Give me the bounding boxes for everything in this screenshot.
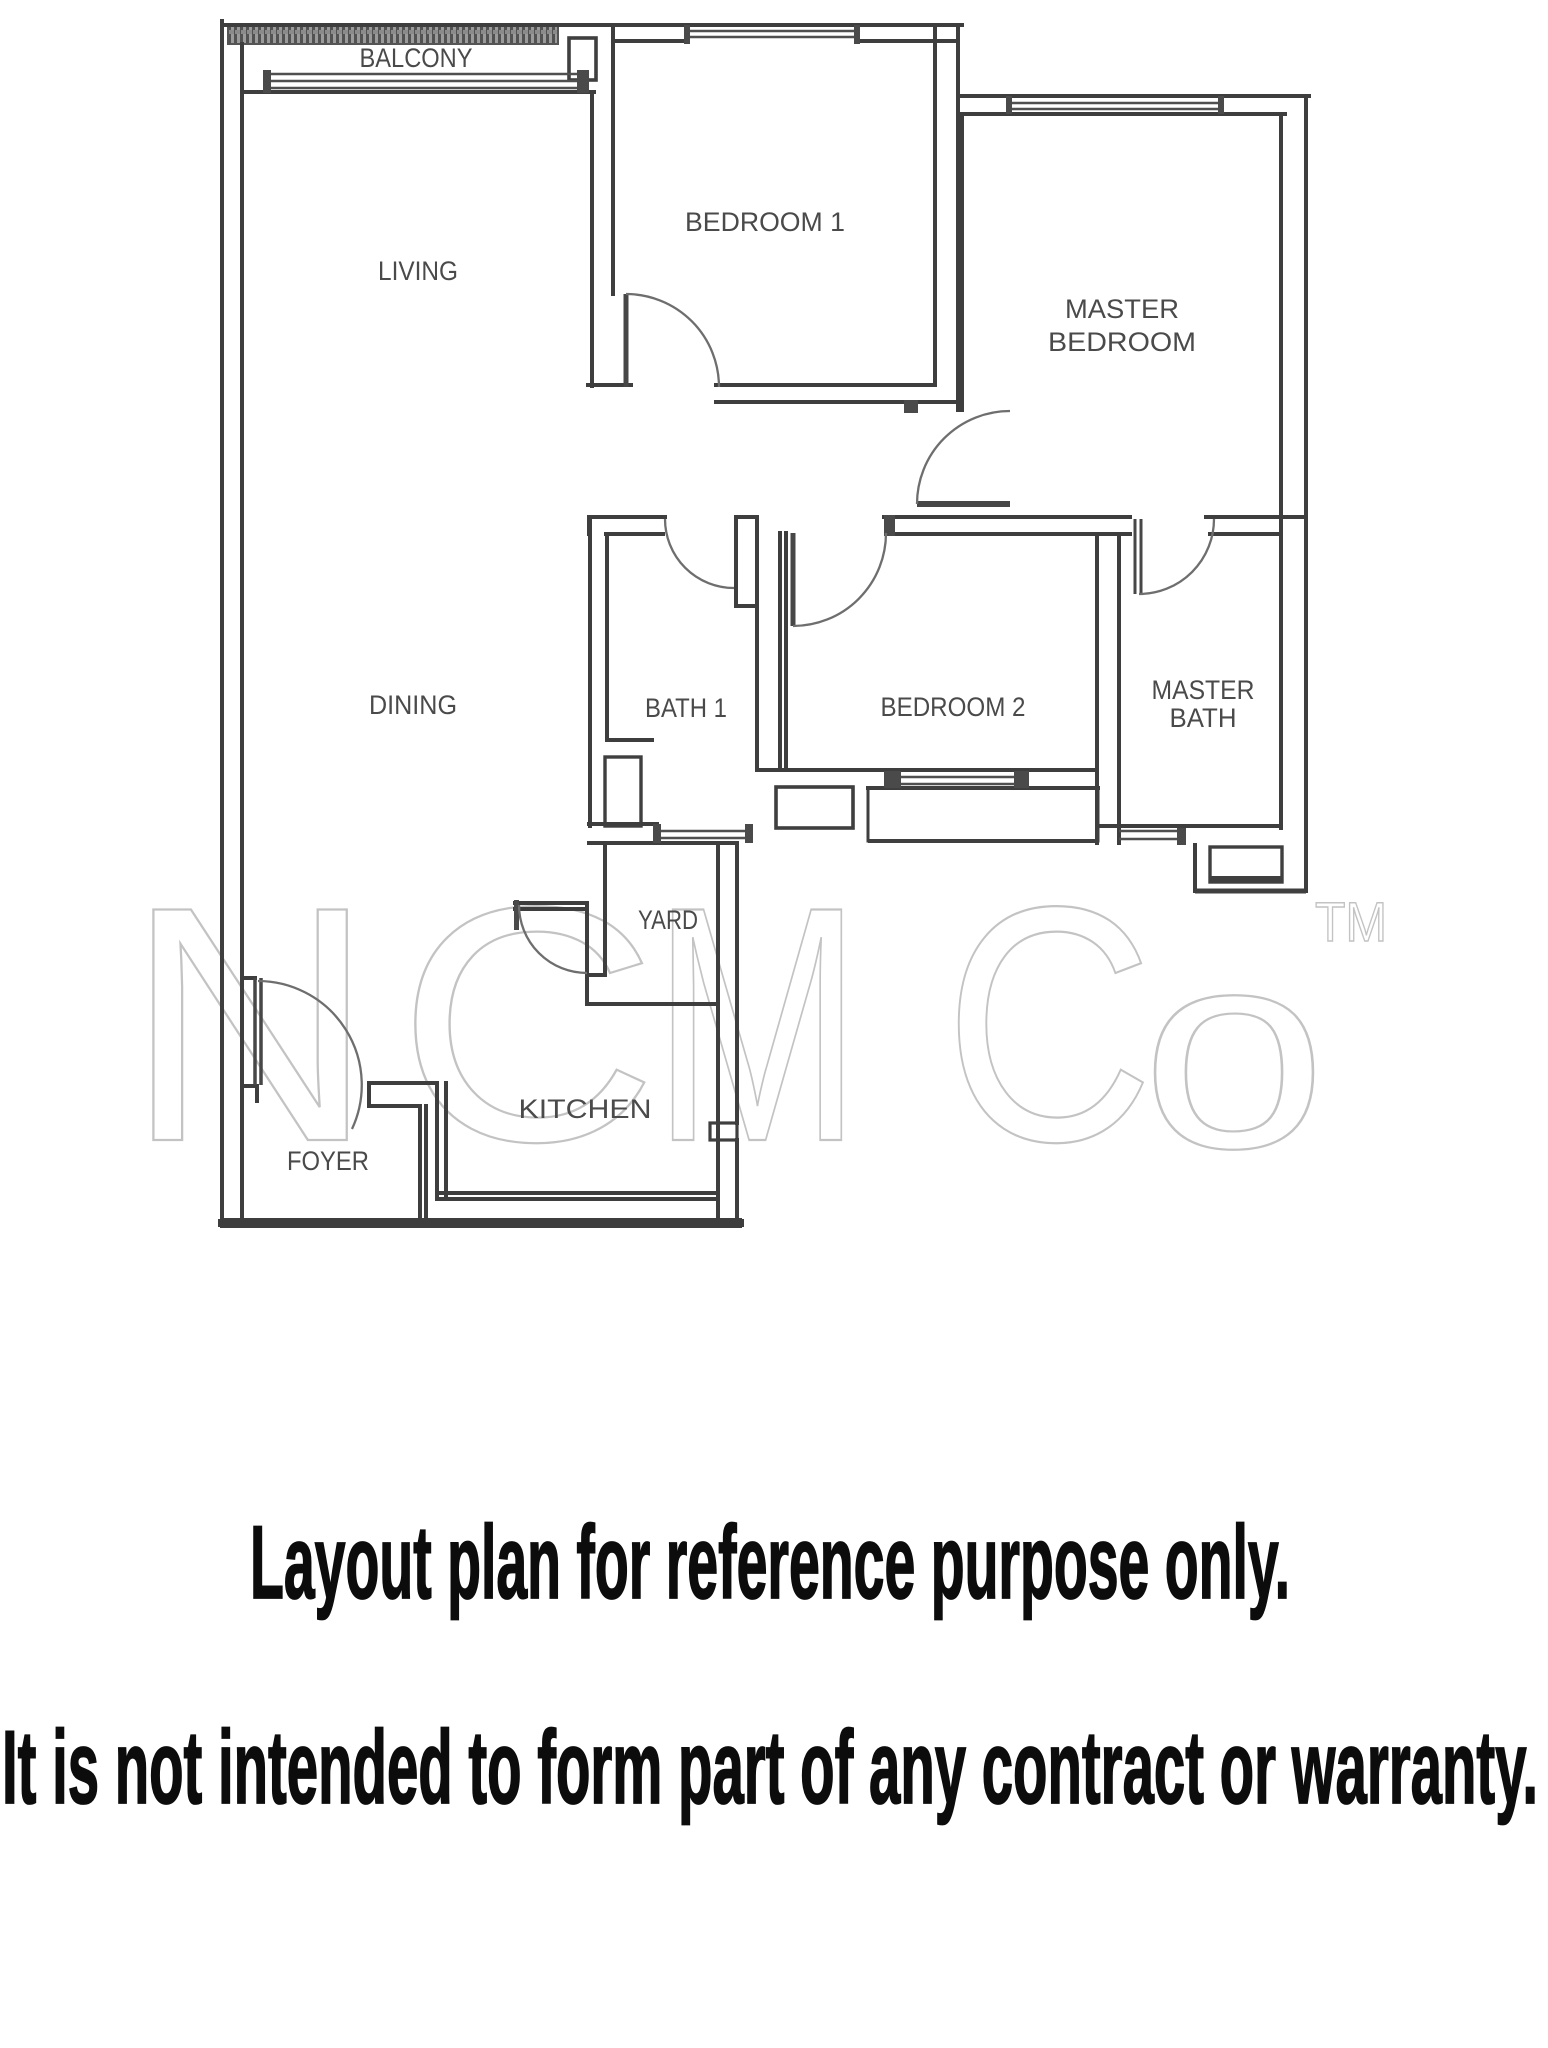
svg-text:DINING: DINING	[369, 690, 457, 720]
svg-text:BEDROOM: BEDROOM	[1048, 327, 1196, 357]
svg-text:BATH: BATH	[1170, 703, 1237, 733]
svg-text:BEDROOM 2: BEDROOM 2	[881, 692, 1026, 722]
svg-text:LIVING: LIVING	[378, 256, 458, 286]
svg-text:KITCHEN: KITCHEN	[519, 1094, 652, 1124]
svg-text:BALCONY: BALCONY	[360, 43, 473, 73]
svg-text:FOYER: FOYER	[287, 1146, 369, 1176]
svg-text:o: o	[1141, 892, 1327, 1207]
svg-text:Layout plan for reference purp: Layout plan for reference purpose only.	[250, 1505, 1290, 1621]
svg-text:BATH 1: BATH 1	[645, 693, 727, 723]
svg-text:TM: TM	[1315, 890, 1387, 953]
svg-text:MASTER: MASTER	[1152, 675, 1255, 705]
svg-text:YARD: YARD	[638, 905, 698, 935]
svg-text:It is not intended to form par: It is not intended to form part of any c…	[2, 1710, 1538, 1826]
svg-text:C: C	[944, 837, 1154, 1211]
svg-text:MASTER: MASTER	[1065, 294, 1179, 324]
svg-text:BEDROOM 1: BEDROOM 1	[685, 207, 845, 237]
svg-text:M: M	[652, 837, 862, 1211]
